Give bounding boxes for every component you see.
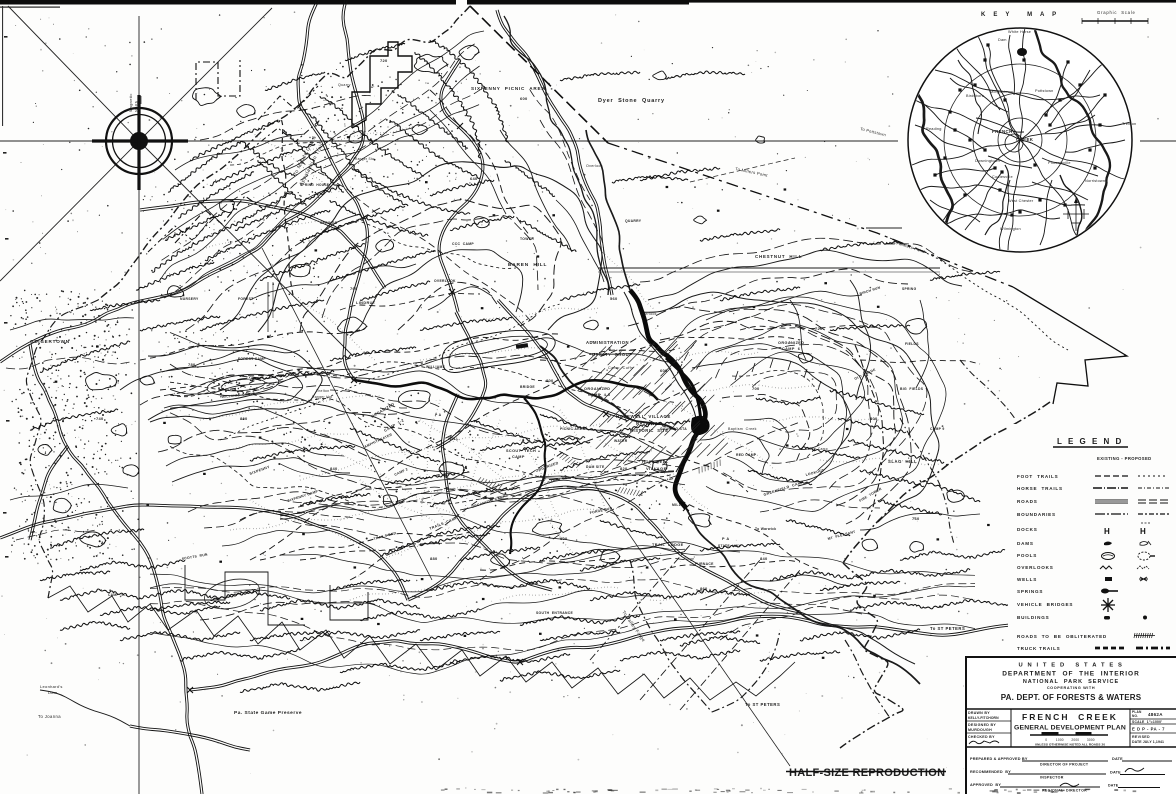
svg-text:H: H [1104, 527, 1110, 536]
svg-text:EXISTING - PROPOSED: EXISTING - PROPOSED [1097, 456, 1152, 461]
svg-text:NURSERY: NURSERY [180, 297, 199, 301]
svg-text:REVISED: REVISED [1132, 735, 1150, 739]
svg-text:SCALE 1″=1000′: SCALE 1″=1000′ [1132, 720, 1162, 724]
svg-text:White Horse: White Horse [1008, 30, 1031, 34]
svg-text:K E Y M A P: K E Y M A P [981, 12, 1059, 18]
svg-text:Phoenixville: Phoenixville [1048, 161, 1071, 165]
svg-text:OVERLOOK: OVERLOOK [434, 279, 456, 283]
svg-text:Reading: Reading [926, 127, 942, 131]
svg-text:DIRECTOR OF PROJECT: DIRECTOR OF PROJECT [1040, 763, 1089, 767]
svg-text:Trenton: Trenton [1122, 122, 1136, 126]
svg-text:To ST PETERS: To ST PETERS [930, 626, 965, 631]
svg-text:NO.: NO. [1132, 714, 1138, 718]
svg-text:Forge: Forge [684, 557, 694, 561]
svg-text:DATE: DATE [1112, 757, 1123, 761]
svg-text:GEIGERTOWN: GEIGERTOWN [30, 339, 70, 344]
svg-text:To Warwick: To Warwick [755, 527, 776, 531]
svg-text:BUILDINGS: BUILDINGS [1017, 615, 1049, 620]
svg-text:SPRING HOUSE: SPRING HOUSE [300, 183, 329, 187]
svg-text:QUARRY: QUARRY [625, 219, 642, 223]
svg-text:800: 800 [546, 378, 554, 383]
svg-text:BOUNDARIES: BOUNDARIES [1017, 512, 1056, 517]
svg-text:P A: P A [435, 413, 442, 417]
svg-text:Morgantown: Morgantown [990, 90, 1013, 94]
svg-text:ROADS: ROADS [1017, 499, 1038, 504]
svg-text:Graphic Scale: Graphic Scale [1097, 10, 1136, 15]
svg-text:GENERAL DEVELOPMENT PLAN: GENERAL DEVELOPMENT PLAN [1014, 725, 1126, 732]
svg-text:Baptism Creek: Baptism Creek [728, 427, 757, 431]
svg-text:SPRING: SPRING [902, 287, 917, 291]
svg-text:BRIDGE: BRIDGE [520, 385, 535, 389]
svg-text:DESIGNED BY: DESIGNED BY [968, 723, 996, 727]
svg-text:Overlook: Overlook [586, 164, 603, 168]
svg-text:RED CAMP: RED CAMP [736, 453, 757, 457]
svg-text:Leonhard's: Leonhard's [40, 684, 63, 689]
svg-text:ADMINISTRATION: ADMINISTRATION [586, 340, 629, 345]
svg-text:CAMP 9: CAMP 9 [930, 427, 945, 431]
svg-text:P A: P A [722, 537, 730, 541]
svg-text:INSPECTOR: INSPECTOR [1040, 776, 1064, 780]
svg-text:VEHICLE BRIDGES: VEHICLE BRIDGES [1017, 602, 1073, 607]
svg-text:DAM SITE: DAM SITE [586, 465, 605, 469]
svg-text:ORGANIZED: ORGANIZED [778, 341, 804, 345]
svg-text:Camp Cuffs: Camp Cuffs [608, 366, 633, 370]
svg-text:DAMS: DAMS [1017, 541, 1034, 546]
svg-text:Coatesville: Coatesville [992, 175, 1013, 179]
svg-text:CREEK: CREEK [1016, 137, 1034, 142]
svg-text:MURDOUGH: MURDOUGH [968, 728, 992, 732]
svg-text:840: 840 [330, 466, 338, 471]
svg-text:To Joanna: To Joanna [38, 714, 61, 719]
svg-text:TRUCK TRAILS: TRUCK TRAILS [1017, 646, 1061, 651]
svg-text:SIXPENNY PICNIC AREA: SIXPENNY PICNIC AREA [471, 86, 546, 91]
svg-text:DATE: DATE [1110, 771, 1121, 775]
svg-text:700: 700 [752, 386, 760, 391]
svg-text:KELLY-FITCHORN: KELLY-FITCHORN [968, 716, 999, 720]
svg-text:600: 600 [520, 96, 528, 101]
svg-text:PICNIC AREA: PICNIC AREA [560, 427, 585, 431]
svg-text:Overlook: Overlook [640, 312, 657, 316]
svg-text:CHECKED BY: CHECKED BY [968, 735, 995, 739]
svg-text:CAMP S-1: CAMP S-1 [108, 593, 127, 597]
svg-text:DOCKS: DOCKS [1017, 527, 1038, 532]
svg-text:WELL: WELL [448, 437, 459, 441]
svg-text:WELLS: WELLS [1017, 577, 1037, 582]
svg-text:L E G E N D: L E G E N D [1057, 437, 1123, 446]
svg-text:FIELDS: FIELDS [905, 342, 919, 346]
svg-text:OVERLOOKS: OVERLOOKS [1017, 565, 1054, 570]
svg-text:PA. DEPT. OF FORESTS & WATERS: PA. DEPT. OF FORESTS & WATERS [1001, 693, 1142, 702]
svg-text:640: 640 [470, 176, 478, 181]
svg-text:ROADS TO BE OBLITERATED: ROADS TO BE OBLITERATED [1017, 634, 1107, 639]
svg-text:TRAIL LODGE: TRAIL LODGE [652, 543, 684, 547]
svg-text:Pa. State Game Preserve: Pa. State Game Preserve [234, 710, 302, 716]
svg-text:740: 740 [96, 416, 104, 421]
svg-text:Birdsboro: Birdsboro [966, 94, 984, 98]
svg-text:Pottstown: Pottstown [1035, 89, 1053, 93]
svg-text:Quarry: Quarry [338, 83, 351, 87]
svg-text:BAREN HILL: BAREN HILL [508, 262, 547, 268]
svg-text:FRENCH: FRENCH [992, 129, 1013, 134]
svg-text:Downingtown: Downingtown [975, 159, 1000, 163]
svg-text:Dyer Stone Quarry: Dyer Stone Quarry [598, 98, 665, 104]
svg-text:CCC CAMP: CCC CAMP [452, 242, 474, 246]
svg-text:UNLESS OTHERWISE NOTED ALL ROA: UNLESS OTHERWISE NOTED ALL ROADS 20 [1035, 743, 1105, 747]
svg-text:MILL: MILL [672, 503, 681, 507]
svg-text:E D P - PA - 7: E D P - PA - 7 [1132, 727, 1165, 732]
svg-text:Magnetic: Magnetic [128, 93, 133, 112]
svg-text:SPRINGS: SPRINGS [320, 221, 338, 225]
svg-text:720: 720 [380, 58, 388, 63]
svg-text:CAMP: CAMP [512, 455, 525, 459]
svg-text:NATIONAL PARK SERVICE: NATIONAL PARK SERVICE [1023, 679, 1119, 685]
svg-text:RECOMMENDED BY: RECOMMENDED BY [970, 770, 1011, 774]
svg-text:WATER: WATER [614, 439, 628, 443]
svg-text:DATE JULY 1,1941: DATE JULY 1,1941 [1132, 740, 1164, 744]
svg-text:PREPARED & APPROVED BY: PREPARED & APPROVED BY [970, 757, 1028, 761]
svg-text:BIG FIELDS: BIG FIELDS [900, 387, 924, 391]
svg-text:4862A: 4862A [1148, 712, 1163, 717]
svg-text:760: 760 [912, 516, 920, 521]
svg-text:SPRINGS: SPRINGS [1017, 589, 1043, 594]
svg-text:West Chester: West Chester [1008, 199, 1034, 203]
svg-text:Dam: Dam [48, 690, 58, 695]
svg-text:FURNACE: FURNACE [695, 562, 714, 566]
svg-text:H: H [1140, 527, 1146, 536]
svg-text:ORGANIZED: ORGANIZED [584, 387, 610, 391]
svg-text:COOPERATING WITH: COOPERATING WITH [1047, 686, 1095, 690]
svg-text:FOOT TRAILS: FOOT TRAILS [1017, 474, 1059, 479]
svg-text:To ST PETERS: To ST PETERS [745, 702, 780, 707]
svg-text:GAUGING STA: GAUGING STA [660, 427, 687, 431]
svg-text:840: 840 [760, 556, 768, 561]
svg-text:900: 900 [560, 536, 568, 541]
svg-text:U N I T E D S T A T E S: U N I T E D S T A T E S [1019, 663, 1124, 669]
svg-text:Thelton: Thelton [316, 389, 329, 393]
svg-text:LINDRUT: LINDRUT [356, 301, 376, 305]
svg-text:760: 760 [350, 286, 358, 291]
svg-text:DEPARTMENT OF THE INTERIOR: DEPARTMENT OF THE INTERIOR [1002, 671, 1140, 678]
svg-text:CHESTNUT HILL: CHESTNUT HILL [755, 254, 802, 259]
svg-text:TOWER: TOWER [520, 237, 534, 241]
svg-text:DRAWN BY: DRAWN BY [968, 711, 990, 715]
svg-text:Dam: Dam [998, 38, 1007, 42]
svg-text:560: 560 [610, 296, 618, 301]
svg-text:SOUTH ENTRANCE: SOUTH ENTRANCE [536, 611, 574, 615]
svg-text:Norristown: Norristown [1085, 179, 1105, 183]
svg-text:APPROVED BY: APPROVED BY [970, 783, 1001, 787]
svg-text:880: 880 [430, 556, 438, 561]
svg-text:Wilmington: Wilmington [1000, 227, 1021, 231]
svg-text:HORSE TRAILS: HORSE TRAILS [1017, 486, 1063, 491]
svg-text:FRENCH CREEK: FRENCH CREEK [1022, 712, 1118, 722]
svg-text:HALF-SIZE REPRODUCTION: HALF-SIZE REPRODUCTION [789, 767, 945, 779]
svg-text:DATE: DATE [1108, 784, 1119, 788]
svg-text:0 1000 2000: 0 1000 2000 3000 [1045, 738, 1095, 742]
svg-text:POOLS: POOLS [1017, 553, 1037, 558]
svg-text:North: North [134, 101, 139, 112]
